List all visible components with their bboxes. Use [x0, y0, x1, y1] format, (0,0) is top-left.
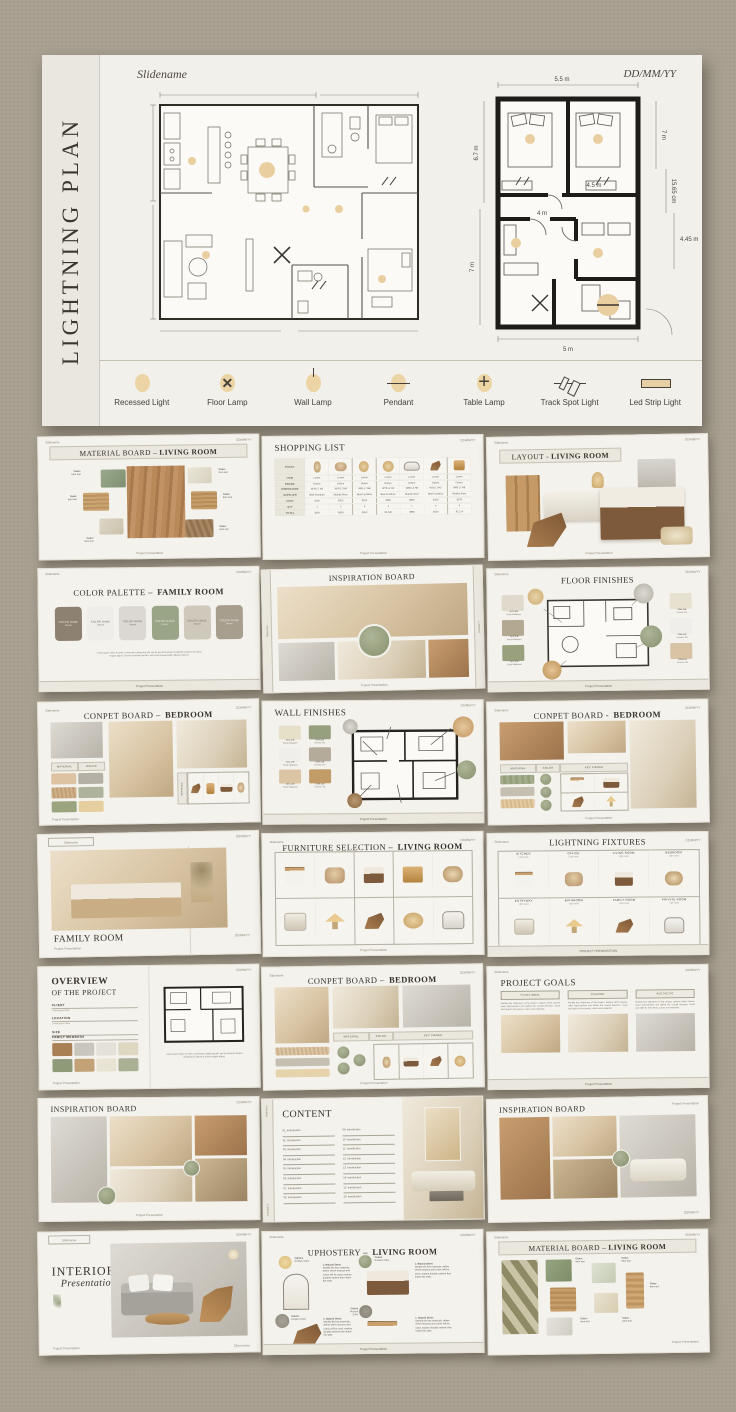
callout: Color:Item text — [650, 1282, 674, 1289]
cell: W85 L7 H8 — [448, 485, 471, 491]
member-swatch — [97, 1058, 117, 1071]
slidename-label: Slidename — [494, 441, 508, 445]
concept-photo-kitchen — [499, 721, 564, 760]
row-label: SUPPLIER — [275, 493, 305, 499]
palette-row: COLOR NAME (Name) COLOR NAME (Name) COLO… — [55, 605, 243, 641]
finish-swatch — [670, 618, 692, 634]
date-label-bottom: DD/MM/YY — [684, 1210, 699, 1214]
product-cell — [374, 1045, 399, 1079]
color-circle — [540, 774, 551, 785]
slide-title: CONPET BOARD – — [308, 975, 385, 986]
slide-family-room: Slidename DD/MM/YY FAMILY ROOM Project P… — [37, 830, 261, 958]
legend-item: Floor Lamp — [194, 371, 260, 408]
finish-swatch — [670, 593, 692, 609]
cell: $150 — [305, 498, 328, 504]
slide-footer: Project Presentation — [136, 683, 163, 687]
concept-photo — [567, 721, 625, 754]
row-label: DIMENSIONS — [275, 487, 305, 493]
finish-item: CRM-11B Ceramic Tile — [306, 747, 333, 766]
finish-circle-tan — [542, 660, 561, 679]
mini-floor-plan — [347, 724, 464, 805]
slidename-label: Slidename — [494, 970, 508, 974]
color-swatch: COLOR NAME (Name) — [55, 607, 82, 641]
light-symbol-icon — [381, 371, 415, 395]
finish-circle-sage — [457, 760, 476, 779]
color-name: COLOR NAME — [187, 619, 206, 622]
furniture-cell — [433, 851, 472, 897]
material-strip: MATERIAL — [500, 764, 536, 774]
cell: $315 — [329, 498, 352, 504]
callout: Color:Item text — [219, 525, 245, 532]
cell: Lorem — [353, 475, 376, 481]
key-pieces-strip: KEY PIECES — [560, 763, 628, 773]
slidename-box: Slidename — [48, 1235, 90, 1245]
finish-item: W73-47B Floral Wallpaper — [502, 645, 526, 666]
row-label: TOTAL — [275, 510, 305, 516]
inspiration-photo — [499, 1117, 550, 1200]
table-in-photo — [429, 1191, 463, 1201]
cell: Lorem — [447, 474, 470, 480]
fixture-cell: BEDROOM Light name — [649, 850, 699, 897]
row-label: COST — [275, 498, 305, 504]
wall-swatch-grid: W73-47B Floral Wallpaper CRM-11B Ceramic… — [277, 725, 333, 789]
slide-overview-of-project: DD/MM/YY OVERVIEW OF THE PROJECT CLIENT … — [37, 964, 260, 1091]
swatch — [500, 787, 534, 796]
footer-top-right: Project Presentation — [672, 1101, 699, 1105]
hero-slidename: Slidename — [137, 67, 187, 82]
dot-callout: ColorsProduct Color — [345, 1307, 358, 1317]
material-swatch — [188, 467, 212, 483]
slide-lightning-fixtures: Slidename DD/MM/YY LIGHTNING FIXTURES KI… — [486, 831, 709, 957]
hero-side-band: LIGHTNING PLAN — [42, 55, 100, 426]
inspiration-photo — [553, 1159, 618, 1199]
product-cell — [594, 774, 627, 793]
product-cell — [447, 457, 470, 474]
legend-item: Pendant — [365, 371, 431, 408]
finish-swatch — [279, 748, 301, 762]
cell: Lorem — [400, 474, 423, 480]
dim-right-top: 7 m — [660, 130, 666, 140]
pillows-photo — [661, 526, 693, 545]
product-cell — [329, 458, 352, 475]
hero-side-title: LIGHTNING PLAN — [58, 116, 84, 364]
goal-body: Identify key objectives of the project, … — [501, 1002, 560, 1012]
finish-circle-beige — [528, 589, 544, 605]
legend-label: Pendant — [369, 398, 427, 408]
field-value: Lorem ipsum dolor — [52, 1009, 138, 1012]
key-pieces-grid — [187, 771, 249, 804]
product-image — [285, 913, 307, 931]
date-label: DD/MM/YY — [460, 1233, 475, 1237]
room-label: OFFICE — [568, 851, 580, 855]
finish-swatch — [670, 643, 692, 659]
material-swatch — [99, 518, 123, 534]
light-name-label: Light name — [519, 857, 529, 859]
material-strip: MATERIAL — [51, 762, 78, 771]
member-swatch — [119, 1058, 139, 1071]
material-swatch — [185, 519, 213, 537]
cell: 3 — [424, 503, 447, 509]
legend-label: Table Lamp — [455, 398, 513, 408]
material-swatch — [550, 1287, 576, 1311]
color-circle — [353, 1054, 365, 1066]
slide-footer: Project Presentation — [39, 1212, 259, 1218]
product-cell — [352, 458, 375, 475]
shopping-table: PHOTO ITEM Lorem Lorem Lorem Lorem Lorem… — [275, 457, 471, 515]
color-circle — [541, 800, 552, 811]
title-bar: MATERIAL BOARD – LIVING ROOM — [49, 444, 247, 461]
date-label: DD/MM/YY — [236, 1100, 251, 1104]
color-name: COLOR NAME — [155, 620, 174, 623]
color-sub: (Name) — [65, 625, 72, 627]
furniture-grid — [275, 850, 474, 946]
cell: 3 — [353, 504, 376, 510]
finish-name: Ceramic Tile — [670, 611, 694, 614]
goals-columns: FUNCTIONAL Identify key objectives of th… — [501, 989, 696, 1053]
cell: $385 — [377, 498, 400, 504]
callout: Color:Item text — [622, 1316, 644, 1323]
cell: W78 L2 H3 — [376, 486, 399, 492]
cover-photo — [110, 1241, 247, 1337]
color-name: COLOR NAME — [123, 620, 142, 623]
legend-item: Table Lamp — [451, 371, 517, 408]
cell: $278 — [448, 497, 471, 503]
product-cell — [305, 458, 328, 475]
slide-title: OVERVIEW — [51, 976, 108, 987]
slide-inspiration-board-3: INSPIRATION BOARD Project Presentation D… — [486, 1095, 710, 1223]
finish-name: Floral Wallpaper — [277, 742, 304, 745]
slide-footer: Project Presentation — [264, 680, 484, 689]
pillow-in-photo — [128, 1274, 150, 1292]
cell: Dolore — [353, 481, 376, 487]
mini-floor-plan — [160, 983, 247, 1046]
slide-title: CONPET BOARD - — [534, 710, 609, 721]
slide-title: CONPET BOARD – — [84, 710, 161, 721]
color-swatch: COLOR NAME (Name) — [151, 606, 178, 640]
product-cell — [448, 1043, 473, 1077]
slide-title: FLOOR FINISHES — [487, 574, 707, 587]
legend-label: Recessed Light — [113, 398, 171, 408]
swatch — [78, 787, 103, 798]
concept-photo-sofa — [50, 722, 103, 759]
light-name-label: Light name — [669, 855, 679, 857]
inspiration-photo — [428, 639, 469, 678]
field-row: CLIENT Lorem ipsum dolor — [52, 1002, 138, 1012]
product-cell — [400, 458, 423, 475]
slide-footer: Project Presentation — [264, 1079, 484, 1086]
finish-name: Floral Wallpaper — [502, 613, 526, 616]
color-sub: (Name) — [194, 623, 201, 625]
cell: Dolore — [329, 481, 352, 487]
finish-name: Ceramic Tile — [307, 764, 334, 767]
bedroom-photo — [50, 848, 228, 931]
product-image — [665, 871, 683, 885]
cell: Lorem — [424, 474, 447, 480]
concept-photo — [402, 984, 471, 1027]
finish-swatch — [309, 770, 331, 784]
arch-mirror-image — [283, 1274, 309, 1310]
table-rows: ITEM Lorem Lorem Lorem Lorem Lorem Lorem… — [275, 474, 471, 516]
dot-callout: ColorsProduct Color — [375, 1256, 397, 1263]
slide-footer: Project Presentation — [489, 814, 709, 821]
content-list-col2: 09. Introduction10. Introduction11. Intr… — [343, 1126, 396, 1203]
callout: Color:Item text — [219, 468, 245, 475]
material-swatch — [191, 491, 217, 509]
slide-footer: Project Presentation — [40, 549, 260, 556]
cell: Dolore — [424, 480, 447, 486]
fixture-cell: BATHROOM Light name — [549, 898, 599, 946]
cell: Best Furniture — [353, 492, 376, 498]
side-strip-left: Slidename — [262, 570, 274, 692]
cell: Best Furniture — [424, 491, 447, 497]
goal-header: CALMING — [568, 990, 627, 1000]
product-image — [615, 919, 633, 933]
color-name: COLOR NAME — [59, 621, 78, 624]
light-name-label: Light name — [669, 902, 679, 904]
slide-title: INSPIRATION BOARD — [499, 1104, 585, 1115]
room-label: FAMILY ROOM — [613, 897, 636, 901]
lamp-photo — [592, 472, 604, 488]
floor-plan-furnished — [146, 89, 436, 337]
right-swatch-list: CRM-11B Ceramic Tile CRM-11B Ceramic Til… — [670, 593, 695, 669]
date-label-bottom: DD/MM/YY — [235, 933, 250, 937]
finish-item: CRM-11B Ceramic Tile — [306, 725, 333, 744]
material-swatch — [592, 1263, 616, 1283]
goal-body: Identify key objectives of the project, … — [568, 1001, 627, 1011]
cell: Lorem — [329, 475, 352, 481]
finish-circle-brown — [347, 793, 362, 808]
cell: $150 — [306, 510, 329, 516]
slide-title-bold: BEDROOM — [389, 974, 437, 985]
material-swatch — [83, 493, 109, 511]
inspiration-photo — [278, 642, 335, 681]
slide-uphostery-living-room: Slidename DD/MM/YY UPHOSTERY – LIVING RO… — [261, 1229, 484, 1355]
cell: 2 — [329, 504, 352, 510]
goal-photo — [636, 1013, 696, 1052]
color-dot-gray — [275, 1314, 289, 1328]
inspiration-photo — [552, 1116, 617, 1157]
dim-left-low: 7 m — [470, 262, 476, 272]
legend-item: Recessed Light — [109, 371, 175, 408]
slide-title-bold: LIVING ROOM — [551, 450, 609, 460]
slidename-box: Slidename — [48, 837, 94, 847]
color-circle — [540, 787, 551, 798]
key-pieces-grid — [373, 1042, 474, 1080]
finish-item: CRM-11B Ceramic Tile — [670, 593, 694, 614]
member-swatch — [52, 1058, 72, 1071]
slide-footer: Project Presentation — [54, 946, 81, 951]
product-cell — [218, 773, 233, 803]
member-swatch — [52, 1043, 72, 1056]
upholstery-block: 1. Natural StoneIdentify the key materia… — [323, 1263, 355, 1283]
product-cell — [561, 774, 594, 793]
concept-photo-vanity — [108, 721, 173, 798]
side-strip: Slidename DD/MM/YY — [262, 1099, 275, 1221]
callout: Color:Item text — [70, 537, 94, 544]
slide-title-bold: LIVING ROOM — [608, 1242, 666, 1252]
slide-wall-finishes: WALL FINISHES DD/MM/YY W73-47B Floral Wa… — [262, 699, 485, 825]
product-image — [514, 918, 534, 934]
cover-subtitle: Presentation — [61, 1278, 117, 1290]
light-name-label: Light name — [569, 856, 579, 858]
cell: 1 — [400, 503, 423, 509]
hero-slide-lightning-plan: LIGHTNING PLAN Slidename DD/MM/YY — [42, 55, 702, 426]
cell: Nearby Store — [400, 492, 423, 498]
date-label: DD/MM/YY — [236, 438, 251, 442]
slide-subtitle: OF THE PROJECT — [52, 987, 117, 997]
green-accent-circle — [183, 1160, 200, 1177]
furniture-cell — [276, 853, 315, 899]
swatch — [78, 773, 103, 784]
inspiration-photo — [195, 1115, 247, 1155]
swatch — [501, 799, 535, 808]
title-bar: LAYOUT - LIVING ROOM — [499, 448, 621, 464]
legend-label: Wall Lamp — [284, 398, 342, 408]
product-image — [515, 872, 533, 887]
branch-decor — [53, 1294, 61, 1308]
material-strip: MATERIAL — [333, 1032, 369, 1042]
dim-left-top: 6.7 m — [474, 145, 480, 160]
finish-item: CRM-11B Ceramic Tile — [307, 770, 334, 789]
product-image — [324, 867, 344, 883]
product-image — [364, 913, 384, 929]
color-dot-sage — [359, 1255, 372, 1268]
title-bar: MATERIAL BOARD – LIVING ROOM — [498, 1239, 696, 1256]
pin-background: LIGHTNING PLAN Slidename DD/MM/YY — [0, 0, 736, 1412]
cell: Lorem — [305, 475, 328, 481]
color-circle — [338, 1062, 350, 1074]
finish-circle-gray — [343, 719, 358, 734]
slide-title-bold: BEDROOM — [613, 709, 661, 720]
wood-sample — [127, 466, 186, 539]
goal-column: CALMING Identify key objectives of the p… — [568, 990, 628, 1052]
slide-conpet-board-bedroom-1: Slidename DD/MM/YY CONPET BOARD – BEDROO… — [37, 698, 261, 825]
material-swatch — [101, 469, 126, 487]
slide-footer: Project Presentation — [52, 817, 79, 821]
slide-inspiration-board-1: Slidename DD/MM/YY INSPIRATION BOARD Pro… — [261, 564, 486, 693]
date-label: DD/MM/YY — [685, 1233, 700, 1237]
family-members-label: FAMILY MEMBERS — [52, 1034, 138, 1041]
room-label: ENTRYWAY — [515, 898, 533, 902]
finish-item: CRM-11B Ceramic Tile — [670, 618, 694, 639]
swatch — [275, 1058, 329, 1067]
slide-conpet-board-bedroom-2: Slidename DD/MM/YY CONPET BOARD - BEDROO… — [486, 698, 710, 825]
date-label: DD/MM/YY — [477, 620, 480, 633]
color-name: COLOR NAME — [91, 620, 110, 623]
cell: W78 L7 H3 — [424, 486, 447, 492]
finish-swatch — [502, 645, 524, 661]
finish-swatch — [502, 620, 524, 636]
furniture-cell — [315, 898, 354, 945]
light-symbol-icon — [125, 371, 159, 395]
cell: Dolore — [400, 480, 423, 486]
product-image — [565, 919, 583, 933]
goal-body: Identify key objectives of the project, … — [635, 1000, 694, 1010]
dim-bottom: 5 m — [563, 347, 573, 353]
date-label: DD/MM/YY — [267, 1203, 270, 1216]
slide-shopping-list: SHOPPING LIST DD/MM/YY PHOTO ITEM Lorem … — [261, 434, 484, 560]
material-swatch — [626, 1272, 645, 1308]
cell: $150 — [424, 497, 447, 503]
slide-footer-bar: Project Presentation — [489, 679, 709, 692]
cell: W85 L7 H8 — [353, 486, 376, 492]
upholstery-block: 1. Natural StoneIdentify the key materia… — [415, 1262, 455, 1279]
product-image — [325, 913, 345, 929]
green-accent-circle — [97, 1186, 116, 1205]
color-dot-taupe — [359, 1305, 372, 1318]
dim-inner-b: 4 m — [537, 211, 547, 217]
member-swatches — [52, 1042, 138, 1072]
product-image — [403, 912, 423, 928]
row-label: ITEM — [275, 475, 305, 481]
slide-material-board-living-room-2: Slidename DD/MM/YY MATERIAL BOARD – LIVI… — [486, 1228, 710, 1355]
light-name-label: Light name — [519, 903, 529, 905]
cell: $850 — [400, 509, 423, 515]
date-label: DD/MM/YY — [236, 968, 251, 972]
content-list-col1: 01. Introduction02. Introduction03. Intr… — [283, 1127, 336, 1204]
slide-material-board-living-room: Slidename DD/MM/YY MATERIAL BOARD – LIVI… — [37, 433, 261, 560]
legend-label: Led Strip Light — [626, 398, 684, 408]
fixture-cell: OFFICE Light name — [549, 851, 599, 898]
content-item: 08. Introduction — [283, 1194, 335, 1204]
slidename-label: Slidename — [494, 1235, 508, 1239]
goal-header: FUNCTIONAL — [501, 990, 560, 1000]
slide-title: WALL FINISHES — [275, 707, 347, 717]
swatch — [51, 787, 76, 798]
slide-content: Slidename DD/MM/YY CONTENT 01. Introduct… — [261, 1095, 485, 1222]
legend-label: Track Spot Light — [541, 398, 599, 408]
swatch — [500, 775, 534, 784]
light-symbol-icon — [210, 371, 244, 395]
row-label: QTY — [275, 504, 305, 510]
row-label: PHOTO — [275, 459, 305, 476]
mini-floor-plan — [544, 595, 653, 670]
inspiration-photo — [110, 1116, 192, 1167]
cell: Dolore — [305, 481, 328, 487]
light-symbol-icon — [467, 371, 501, 395]
content-item: 16. Introduction — [343, 1193, 395, 1203]
vertical-divider — [148, 966, 150, 1088]
product-cell — [203, 773, 218, 803]
color-swatch: COLOR NAME (Name) — [184, 605, 211, 639]
furniture-cell — [394, 897, 433, 944]
member-swatch — [96, 1042, 116, 1055]
goal-column: AESTHETIC Identify key objectives of the… — [635, 989, 695, 1051]
slidename-label: Slidename — [265, 1105, 268, 1117]
dot-callout: FabricsProduct Color — [295, 1257, 317, 1264]
leaf-pattern-sample — [502, 1260, 539, 1334]
finish-swatch — [279, 770, 301, 784]
cell: Best Furniture — [376, 492, 399, 498]
finish-circle-sage — [640, 625, 662, 647]
slide-footer-bar: Project Presentation — [489, 1077, 709, 1089]
cell: $850 — [400, 497, 423, 503]
fixture-cell: KITCHEN Light name — [499, 851, 549, 898]
cell: $450 — [353, 509, 376, 515]
slide-conpet-board-bedroom-3: Slidename DD/MM/YY CONPET BOARD – BEDROO… — [261, 963, 485, 1090]
date-label: DD/MM/YY — [236, 834, 251, 838]
title-wrap: COLOR PALETTE – FAMILY ROOM — [39, 581, 259, 601]
palette-description: Lorem ipsum dolor sit amet, consectetur … — [94, 651, 204, 659]
slide-footer: Project Presentation — [53, 1081, 80, 1085]
product-image — [403, 866, 423, 882]
product-image — [565, 872, 583, 886]
product-cell — [234, 772, 249, 802]
light-name-label: Light name — [619, 856, 629, 858]
room-label: BEDROOM — [666, 850, 683, 854]
finish-name: Ceramic Tile — [306, 742, 333, 745]
finish-circle-tan — [453, 716, 474, 737]
